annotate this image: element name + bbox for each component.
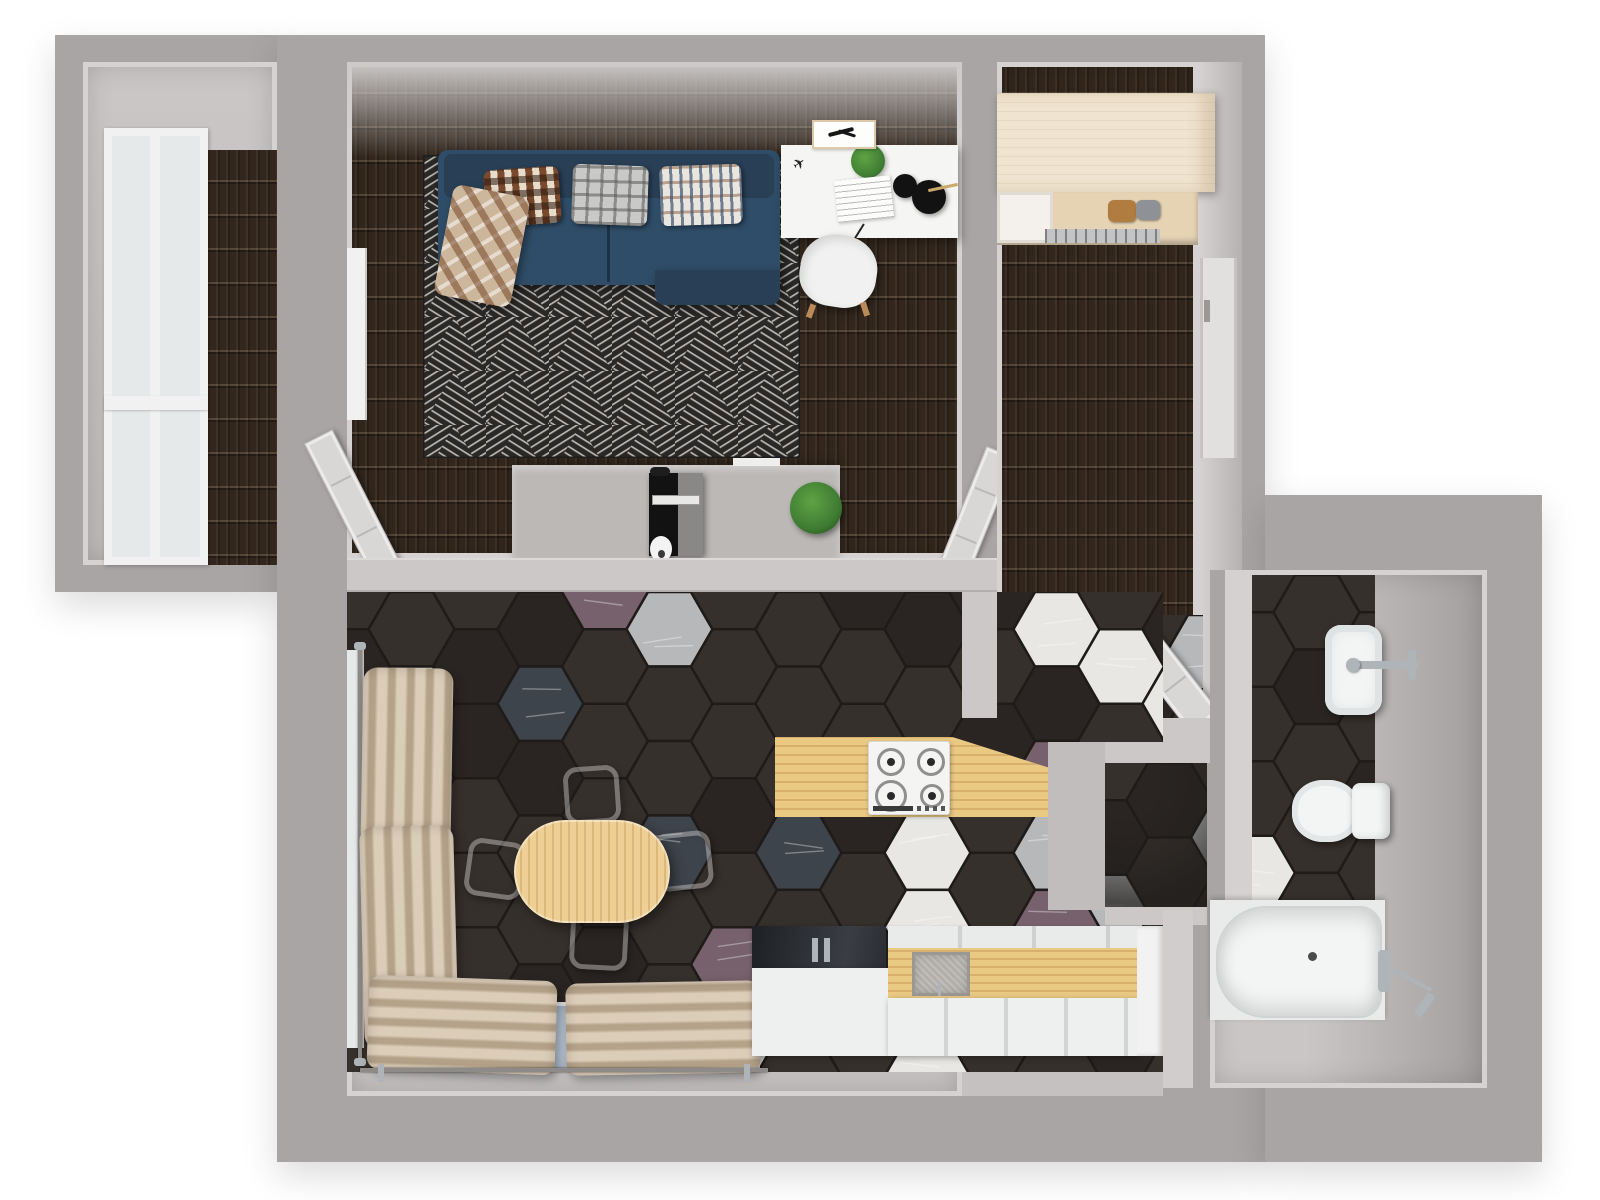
console-paper [733,458,780,466]
basin-faucet-knob [1346,658,1360,672]
closet-shadow [1105,763,1207,907]
curtain-bottom-right [565,980,761,1075]
cabinet-left [752,968,888,1056]
kitchen-sink [912,952,970,996]
entrance-door [1200,258,1237,458]
balcony-door-window [347,248,367,420]
window-mullion [104,396,208,410]
console-plant [790,482,842,534]
rod-finial [354,1058,366,1066]
pillow-plaid [571,164,649,227]
burner [920,784,944,808]
shoes-gray [1136,200,1160,220]
faucet-handles [824,938,830,962]
nook-closet-wall [1048,742,1105,910]
wall-picture [812,120,876,149]
tv-side-panel [678,473,703,556]
tub-drain [1308,952,1317,961]
curtain-left-upper [360,667,453,849]
hob-control-strip [873,806,913,811]
floorplan-render: ✈ [0,0,1600,1200]
entrance-door-handle [1204,300,1210,322]
faucet-handles [812,938,818,962]
desk-lamp-shade [912,180,946,214]
counter-dark-glass [752,926,886,968]
burner [877,748,905,776]
balcony-floor [208,150,277,565]
burner [917,748,945,776]
gas-hob [868,741,950,815]
sink-faucet [938,982,941,996]
toilet-bowl [1292,780,1360,842]
counter-wood-band [888,948,1137,998]
hall-wardrobe [997,93,1215,192]
balcony-window-pane [160,136,200,557]
middle-wall [347,558,997,592]
curtain-bottom-left [366,975,557,1076]
sofa-chaise [655,270,780,305]
rod-finial [354,642,366,650]
toilet-tank [1352,783,1390,839]
hall-shoe-shelf [997,192,1198,245]
pillow-patterned [659,164,743,227]
cabinet-fronts [888,998,1137,1056]
balcony-window-pane [112,136,150,557]
cabinet-side-face [1137,926,1163,1056]
kitchen-right-wall-face [1163,910,1193,1088]
curtain-rod-bottom [360,1068,768,1072]
shelf-vent-strip [1045,229,1160,243]
dining-chair-top [562,764,622,826]
bathtub [1216,906,1382,1018]
dining-hall-wall [962,592,997,718]
hob-knobs [917,806,945,811]
gamepad-icon [650,467,670,476]
roll-core [658,550,665,558]
desk-plant [851,144,885,178]
tv-soundbar [652,495,700,505]
counter-top-lip [888,926,1137,948]
basin-faucet-cross [1408,650,1416,680]
bath-left-wall-face [1225,570,1252,900]
rod-bracket [744,1064,750,1082]
shoes-brown [1108,200,1136,222]
balcony-window-frame [104,128,208,565]
shower-mixer [1378,950,1390,992]
dining-table [514,820,670,923]
desk-papers [834,175,894,223]
room-balcony [83,62,277,565]
rod-bracket [378,1064,384,1082]
